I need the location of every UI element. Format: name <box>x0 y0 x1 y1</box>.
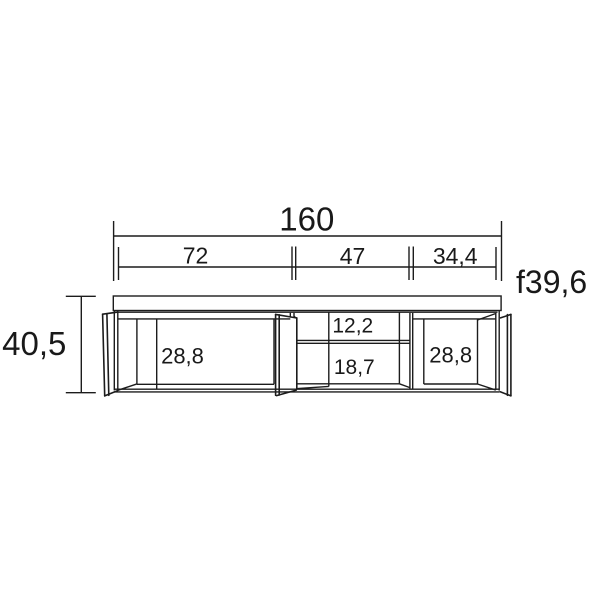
svg-text:34,4: 34,4 <box>433 243 478 269</box>
svg-text:28,8: 28,8 <box>429 343 472 368</box>
svg-text:f39,6: f39,6 <box>516 264 587 300</box>
svg-text:47: 47 <box>340 243 366 269</box>
svg-text:40,5: 40,5 <box>2 325 66 362</box>
svg-text:18,7: 18,7 <box>334 356 375 379</box>
svg-text:160: 160 <box>279 201 334 238</box>
svg-text:28,8: 28,8 <box>161 344 204 369</box>
svg-text:12,2: 12,2 <box>332 315 373 338</box>
svg-text:72: 72 <box>183 243 209 269</box>
